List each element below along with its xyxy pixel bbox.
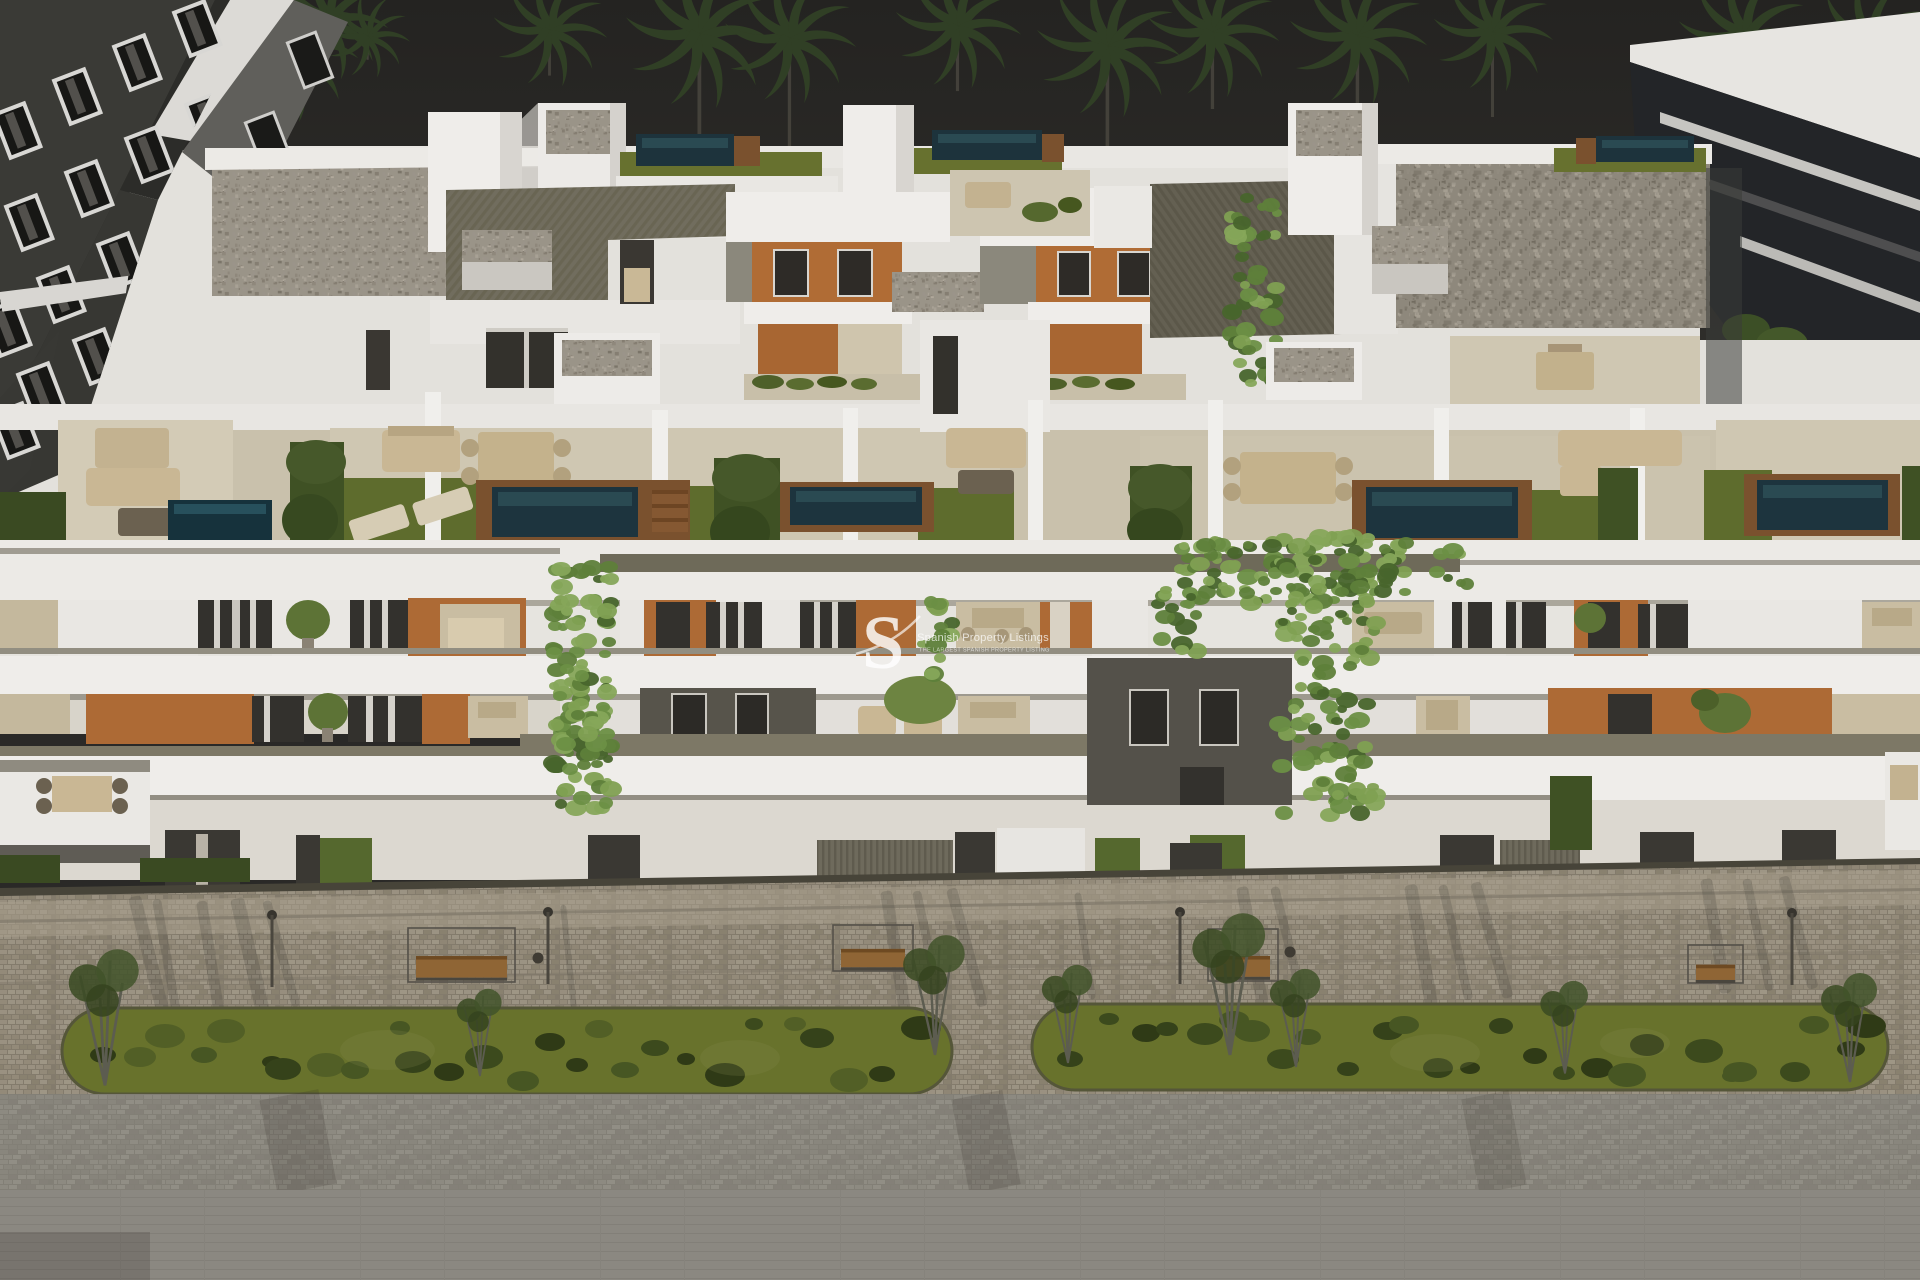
- svg-text:Spanish Property Listings: Spanish Property Listings: [917, 632, 1049, 644]
- svg-text:THE LARGEST SPANISH PROPERTY L: THE LARGEST SPANISH PROPERTY LISTING: [919, 648, 1050, 654]
